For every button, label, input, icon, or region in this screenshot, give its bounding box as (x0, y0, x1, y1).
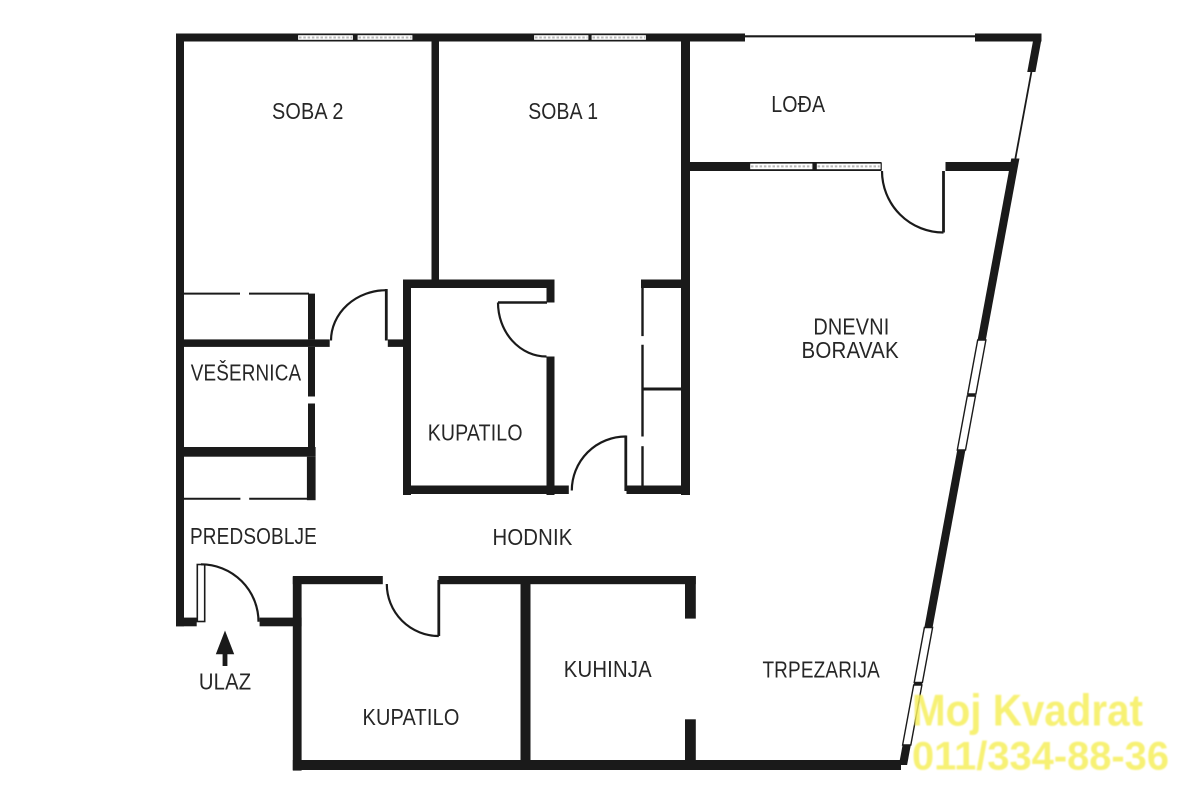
svg-text:BORAVAK: BORAVAK (802, 337, 899, 363)
svg-text:VEŠERNICA: VEŠERNICA (191, 359, 302, 386)
svg-text:KUHINJA: KUHINJA (564, 656, 652, 682)
svg-text:KUPATILO: KUPATILO (363, 704, 460, 730)
svg-text:PREDSOBLJE: PREDSOBLJE (190, 523, 317, 549)
svg-text:TRPEZARIJA: TRPEZARIJA (762, 657, 880, 683)
svg-text:ULAZ: ULAZ (199, 669, 251, 695)
svg-text:LOĐA: LOĐA (771, 91, 825, 117)
svg-text:011/334-88-36: 011/334-88-36 (912, 735, 1169, 779)
svg-text:SOBA 1: SOBA 1 (528, 98, 598, 124)
svg-text:KUPATILO: KUPATILO (428, 420, 523, 446)
svg-text:Moj Kvadrat: Moj Kvadrat (912, 687, 1143, 736)
svg-text:SOBA 2: SOBA 2 (272, 98, 344, 124)
svg-text:DNEVNI: DNEVNI (813, 314, 889, 340)
svg-text:HODNIK: HODNIK (493, 524, 573, 550)
